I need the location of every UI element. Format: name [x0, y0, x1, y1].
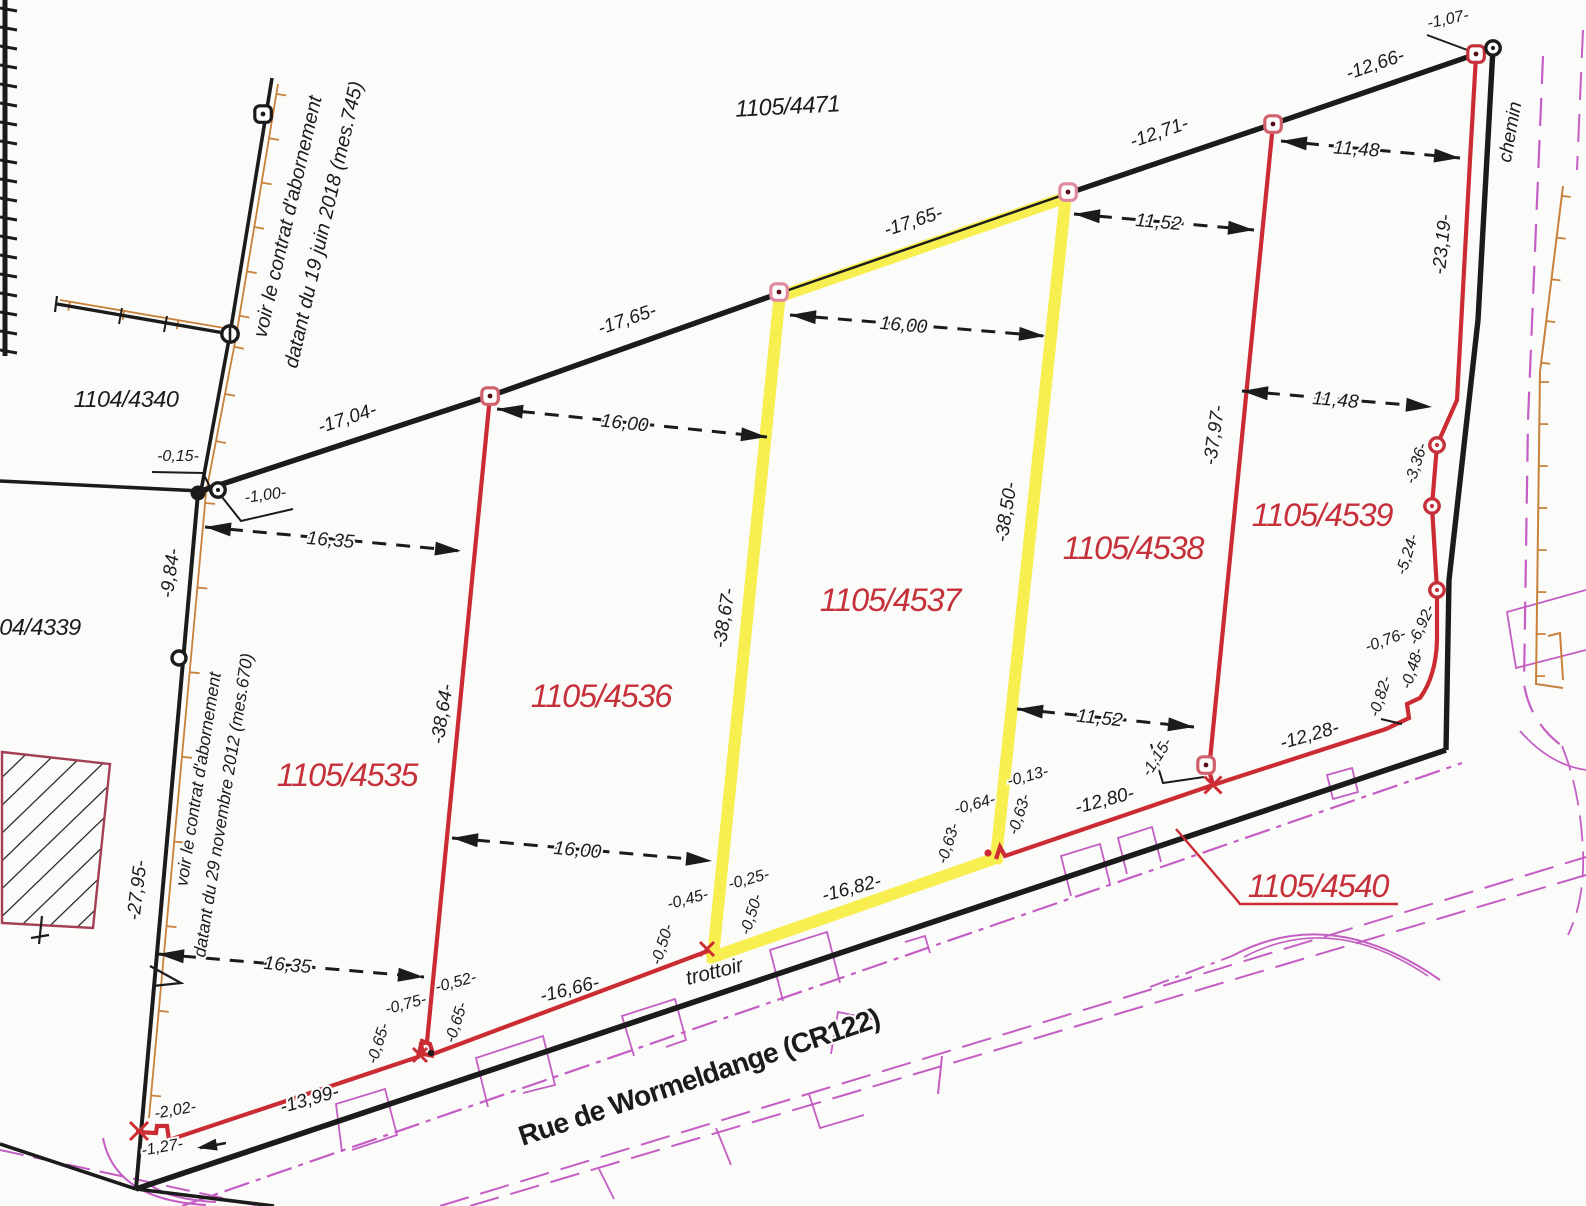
svg-text:11,48: 11,48 — [1312, 388, 1360, 413]
svg-text:1105/4538: 1105/4538 — [1063, 530, 1205, 566]
svg-text:16,35: 16,35 — [306, 528, 356, 553]
svg-text:04/4339: 04/4339 — [0, 614, 81, 640]
svg-text:-0,15-: -0,15- — [157, 448, 199, 465]
svg-text:1105/4535: 1105/4535 — [277, 757, 420, 793]
svg-text:11,48: 11,48 — [1333, 137, 1381, 161]
svg-text:1105/4537: 1105/4537 — [820, 582, 964, 618]
svg-text:1104/4340: 1104/4340 — [74, 386, 179, 412]
svg-text:1105/4536: 1105/4536 — [531, 678, 674, 714]
svg-text:16,35: 16,35 — [263, 953, 313, 978]
svg-text:16,00: 16,00 — [553, 838, 603, 863]
svg-text:1105/4539: 1105/4539 — [1252, 497, 1394, 533]
svg-text:1105/4471: 1105/4471 — [735, 90, 841, 121]
svg-text:1105/4540: 1105/4540 — [1248, 868, 1390, 904]
svg-text:16,00: 16,00 — [879, 313, 929, 338]
svg-text:11,52: 11,52 — [1135, 210, 1183, 235]
